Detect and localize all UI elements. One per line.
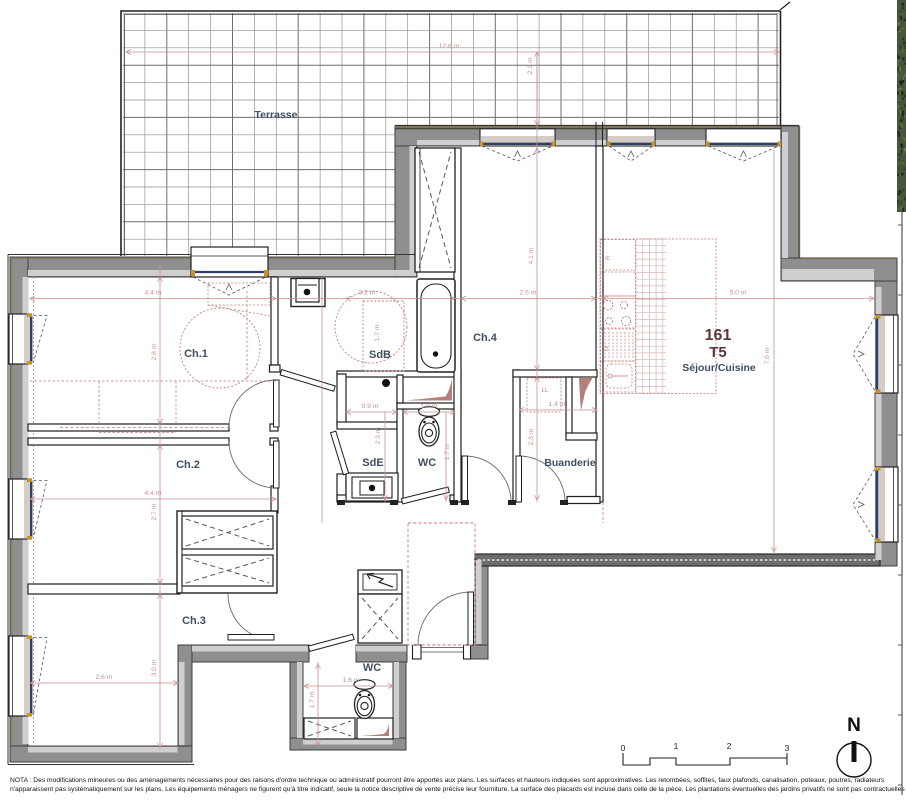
svg-text:161: 161	[705, 327, 732, 344]
svg-text:NOTA : Des modifications mineu: NOTA : Des modifications mineures ou des…	[10, 777, 885, 784]
svg-text:2.6 m: 2.6 m	[96, 674, 113, 681]
svg-text:12.6 m: 12.6 m	[439, 43, 460, 50]
svg-text:5.0 m: 5.0 m	[730, 290, 747, 297]
svg-text:Terrasse: Terrasse	[254, 109, 297, 121]
svg-text:LV: LV	[604, 344, 610, 350]
svg-text:1.7 m: 1.7 m	[374, 324, 381, 341]
svg-text:4.4 m: 4.4 m	[145, 490, 162, 497]
svg-text:2.3 m: 2.3 m	[375, 427, 382, 444]
svg-text:Séjour/Cuisine: Séjour/Cuisine	[682, 362, 756, 374]
svg-text:1.4 m: 1.4 m	[549, 401, 566, 408]
svg-text:WC: WC	[363, 662, 381, 674]
svg-text:T5: T5	[709, 344, 727, 361]
svg-text:3: 3	[785, 743, 790, 753]
svg-text:4.4 m: 4.4 m	[145, 290, 162, 297]
svg-text:n'apparaissent pas systématiqu: n'apparaissent pas systématiquement sur …	[10, 786, 905, 793]
svg-text:Buanderie: Buanderie	[544, 457, 596, 469]
svg-text:1.7 m: 1.7 m	[444, 443, 451, 460]
svg-text:2.1 m: 2.1 m	[527, 57, 534, 74]
svg-text:1.0 m: 1.0 m	[421, 403, 438, 410]
svg-text:Ch.3: Ch.3	[182, 615, 206, 627]
svg-text:R: R	[606, 255, 612, 260]
svg-text:3.2 m: 3.2 m	[359, 290, 376, 297]
svg-text:Ch.4: Ch.4	[473, 332, 498, 344]
svg-text:LL: LL	[542, 388, 549, 394]
svg-text:7.6 m: 7.6 m	[764, 347, 771, 364]
svg-text:4.1 m: 4.1 m	[528, 247, 535, 264]
svg-text:2: 2	[727, 741, 732, 751]
svg-text:1.7 m: 1.7 m	[309, 691, 316, 708]
svg-text:2.5 m: 2.5 m	[520, 290, 537, 297]
svg-text:1: 1	[674, 741, 679, 751]
svg-text:0.9 m: 0.9 m	[362, 403, 379, 410]
svg-text:0: 0	[621, 743, 626, 753]
svg-text:N: N	[847, 715, 861, 736]
svg-text:Ch.2: Ch.2	[176, 459, 200, 471]
svg-text:3.0 m: 3.0 m	[151, 659, 158, 676]
svg-text:2.3 m: 2.3 m	[528, 428, 535, 445]
svg-text:2.8 m: 2.8 m	[151, 343, 158, 360]
svg-text:SdE: SdE	[362, 457, 383, 469]
svg-text:SdB: SdB	[369, 349, 391, 361]
svg-text:1.6 m: 1.6 m	[343, 677, 360, 684]
svg-text:WC: WC	[418, 457, 436, 469]
svg-text:Ch.1: Ch.1	[184, 348, 208, 360]
svg-text:2.7 m: 2.7 m	[151, 503, 158, 520]
